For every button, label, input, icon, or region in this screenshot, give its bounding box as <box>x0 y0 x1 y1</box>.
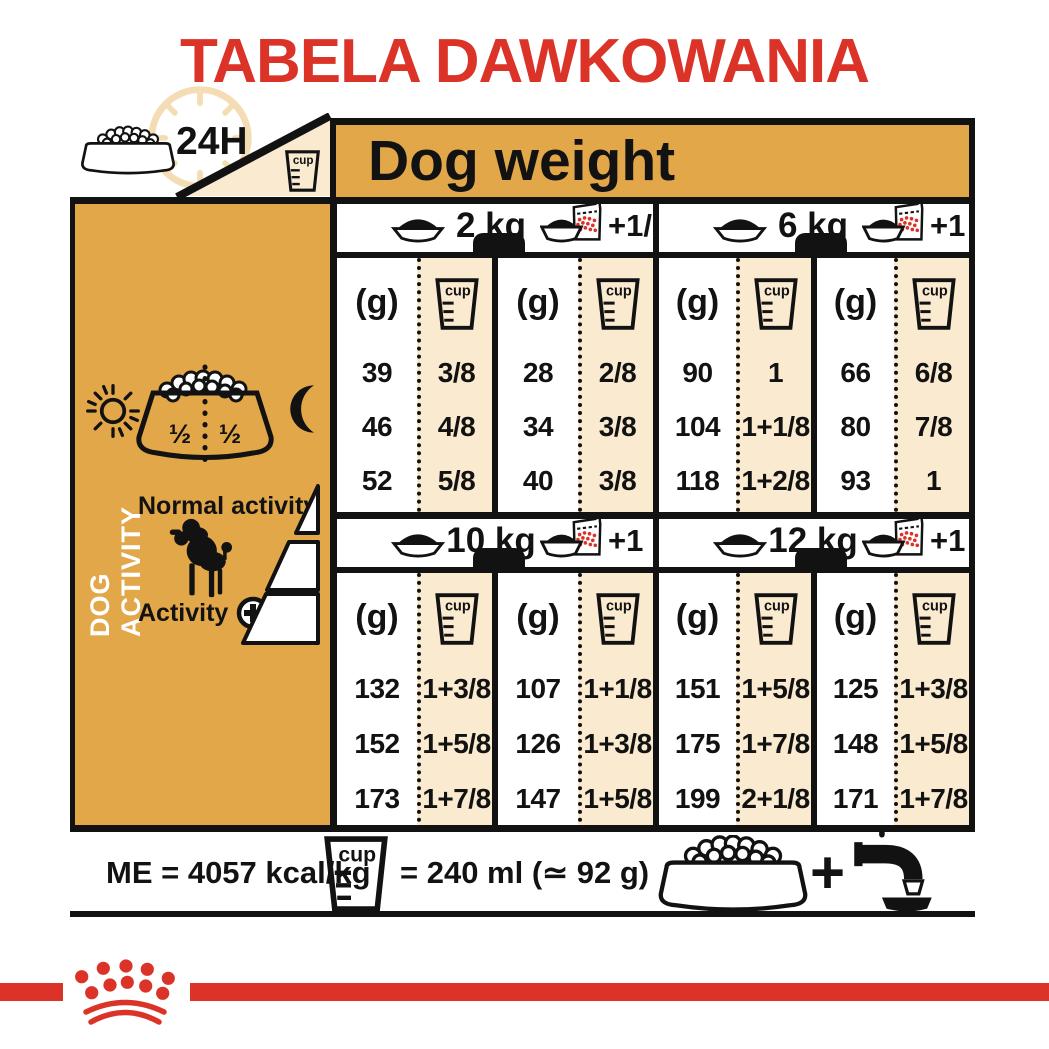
cup-value: 3/8 <box>438 357 475 389</box>
grams-value: 66 <box>840 357 870 389</box>
cup-value: 1+7/8 <box>422 783 490 815</box>
grams-header: (g) <box>355 598 398 637</box>
cup-value: 2+1/8 <box>741 783 809 815</box>
cup-icon <box>318 834 394 914</box>
grams-value: 126 <box>515 728 560 760</box>
grams-value: 80 <box>840 411 870 443</box>
grams-value: 46 <box>362 411 392 443</box>
cup-value: 1+7/8 <box>899 783 967 815</box>
divider <box>70 825 975 832</box>
weight-header: 10 kg +1 <box>337 512 653 573</box>
poodle-icon <box>168 515 232 601</box>
cup-value: 5/8 <box>438 465 475 497</box>
weight-tab <box>473 548 525 567</box>
cup-value: 3/8 <box>599 465 636 497</box>
weight-section-6kg: 6 kg +1 (g) 90 104 118 1 1+1/8 1+2/8 <box>653 197 975 512</box>
grams-value: 39 <box>362 357 392 389</box>
with-wet-columns: (g) 28 34 40 2/8 3/8 3/8 <box>492 258 653 512</box>
dosage-table-page: cup <box>0 0 1049 1049</box>
dog-activity-sidebar: ½ ½ DOG ACTIVITY Normal activity Activit… <box>70 197 330 832</box>
wet-food-bowl-icon <box>540 200 606 254</box>
weight-tab <box>795 548 847 567</box>
dry-only-columns: (g) 132 152 173 1+3/8 1+5/8 1+7/8 <box>337 573 492 830</box>
dosage-grid: (g) 39 46 52 3/8 4/8 5/8 (g) 28 34 40 <box>337 258 653 512</box>
divider <box>70 911 975 917</box>
grams-value: 34 <box>523 411 553 443</box>
grams-value: 28 <box>523 357 553 389</box>
weight-header: 2 kg +1/2 <box>337 197 653 258</box>
grams-value: 125 <box>833 673 878 705</box>
cup-value: 4/8 <box>438 411 475 443</box>
half-left-label: ½ <box>169 419 192 449</box>
duration-label: 24H <box>176 120 248 164</box>
grams-value: 148 <box>833 728 878 760</box>
cup-value: 1+2/8 <box>741 465 809 497</box>
half-right-label: ½ <box>219 419 242 449</box>
dosage-grid: (g) 132 152 173 1+3/8 1+5/8 1+7/8 (g) 10… <box>337 573 653 830</box>
wet-food-bowl-icon <box>540 515 606 569</box>
weight-section-12kg: 12 kg +1 (g) 151 175 199 1+5/8 1+7/8 2+1… <box>653 512 975 830</box>
half-half-bowl-icon: ½ ½ <box>133 363 277 471</box>
grams-header: (g) <box>516 598 559 637</box>
grams-value: 173 <box>354 783 399 815</box>
weight-header: 6 kg +1 <box>659 197 969 258</box>
dry-only-columns: (g) 90 104 118 1 1+1/8 1+2/8 <box>659 258 811 512</box>
weight-section-2kg: 2 kg +1/2 (g) 39 46 52 3/8 4/8 5/8 <box>330 197 653 512</box>
cup-volume-label: = 240 ml (≃ 92 g) <box>400 855 649 891</box>
with-wet-columns: (g) 66 80 93 6/8 7/8 1 <box>811 258 969 512</box>
dog-weight-label: Dog weight <box>368 128 675 194</box>
royal-canin-crown-logo <box>58 948 190 1028</box>
cup-value: 1+5/8 <box>422 728 490 760</box>
grams-header: (g) <box>834 598 877 637</box>
cup-value: 1+3/8 <box>583 728 651 760</box>
dog-weight-header: Dog weight <box>330 118 975 197</box>
cup-value: 1 <box>768 357 783 389</box>
cup-value: 1+7/8 <box>741 728 809 760</box>
grams-value: 107 <box>515 673 560 705</box>
grams-value: 175 <box>675 728 720 760</box>
cup-icon <box>434 276 480 332</box>
kibble-bowl-icon <box>652 835 814 911</box>
cup-icon <box>911 591 957 647</box>
cup-value: 1+5/8 <box>741 673 809 705</box>
cup-icon <box>595 591 641 647</box>
activity-scale-icon <box>238 482 324 648</box>
dry-only-columns: (g) 151 175 199 1+5/8 1+7/8 2+1/8 <box>659 573 811 830</box>
cup-icon <box>434 591 480 647</box>
cup-value: 1+5/8 <box>899 728 967 760</box>
weight-tab <box>473 233 525 252</box>
cup-value: 1+5/8 <box>583 783 651 815</box>
cup-value: 1+1/8 <box>741 411 809 443</box>
dry-only-columns: (g) 39 46 52 3/8 4/8 5/8 <box>337 258 492 512</box>
cup-value: 6/8 <box>915 357 952 389</box>
grams-value: 104 <box>675 411 720 443</box>
divider <box>330 512 975 519</box>
grams-value: 118 <box>676 465 720 497</box>
grams-header: (g) <box>834 283 877 322</box>
plus-label: + <box>810 838 845 907</box>
cup-icon <box>595 276 641 332</box>
grams-header: (g) <box>516 283 559 322</box>
grams-header: (g) <box>355 283 398 322</box>
weight-tab <box>795 233 847 252</box>
cup-value: 1+3/8 <box>422 673 490 705</box>
with-wet-columns: (g) 125 148 171 1+3/8 1+5/8 1+7/8 <box>811 573 969 830</box>
wet-add-label: +1 <box>930 208 965 244</box>
grams-value: 147 <box>515 783 560 815</box>
cup-value: 2/8 <box>599 357 636 389</box>
grams-value: 152 <box>354 728 399 760</box>
wet-food-bowl-icon <box>862 515 928 569</box>
grams-value: 171 <box>833 783 878 815</box>
grams-value: 93 <box>840 465 870 497</box>
wet-add-label: +1 <box>930 523 965 559</box>
grams-value: 132 <box>354 673 399 705</box>
grams-value: 151 <box>675 673 720 705</box>
moon-icon <box>283 383 323 435</box>
dosage-grid: (g) 90 104 118 1 1+1/8 1+2/8 (g) 66 80 <box>659 258 969 512</box>
cup-icon <box>911 276 957 332</box>
grams-value: 52 <box>362 465 392 497</box>
dosage-grid: (g) 151 175 199 1+5/8 1+7/8 2+1/8 (g) 12… <box>659 573 969 830</box>
cup-value: 1+1/8 <box>583 673 651 705</box>
divider <box>70 197 975 204</box>
grams-value: 40 <box>523 465 553 497</box>
cup-icon <box>284 146 321 196</box>
cup-icon <box>753 591 799 647</box>
brand-stripe <box>190 983 1049 1001</box>
grams-value: 199 <box>675 783 720 815</box>
with-wet-columns: (g) 107 126 147 1+1/8 1+3/8 1+5/8 <box>492 573 653 830</box>
wet-food-bowl-icon <box>862 200 928 254</box>
kibble-bowl-icon <box>80 122 176 178</box>
wet-add-label: +1 <box>608 523 643 559</box>
weight-header: 12 kg +1 <box>659 512 969 573</box>
grams-value: 90 <box>682 357 712 389</box>
cup-value: 1+3/8 <box>899 673 967 705</box>
cup-icon <box>753 276 799 332</box>
cup-value: 1 <box>926 465 941 497</box>
cup-value: 3/8 <box>599 411 636 443</box>
brand-stripe <box>0 983 63 1001</box>
grams-header: (g) <box>676 598 719 637</box>
cup-value: 7/8 <box>915 411 952 443</box>
weight-section-10kg: 10 kg +1 (g) 132 152 173 1+3/8 1+5/8 1+7… <box>330 512 653 830</box>
water-tap-icon <box>850 820 936 916</box>
activity-label: Activity <box>138 599 228 628</box>
grams-header: (g) <box>676 283 719 322</box>
